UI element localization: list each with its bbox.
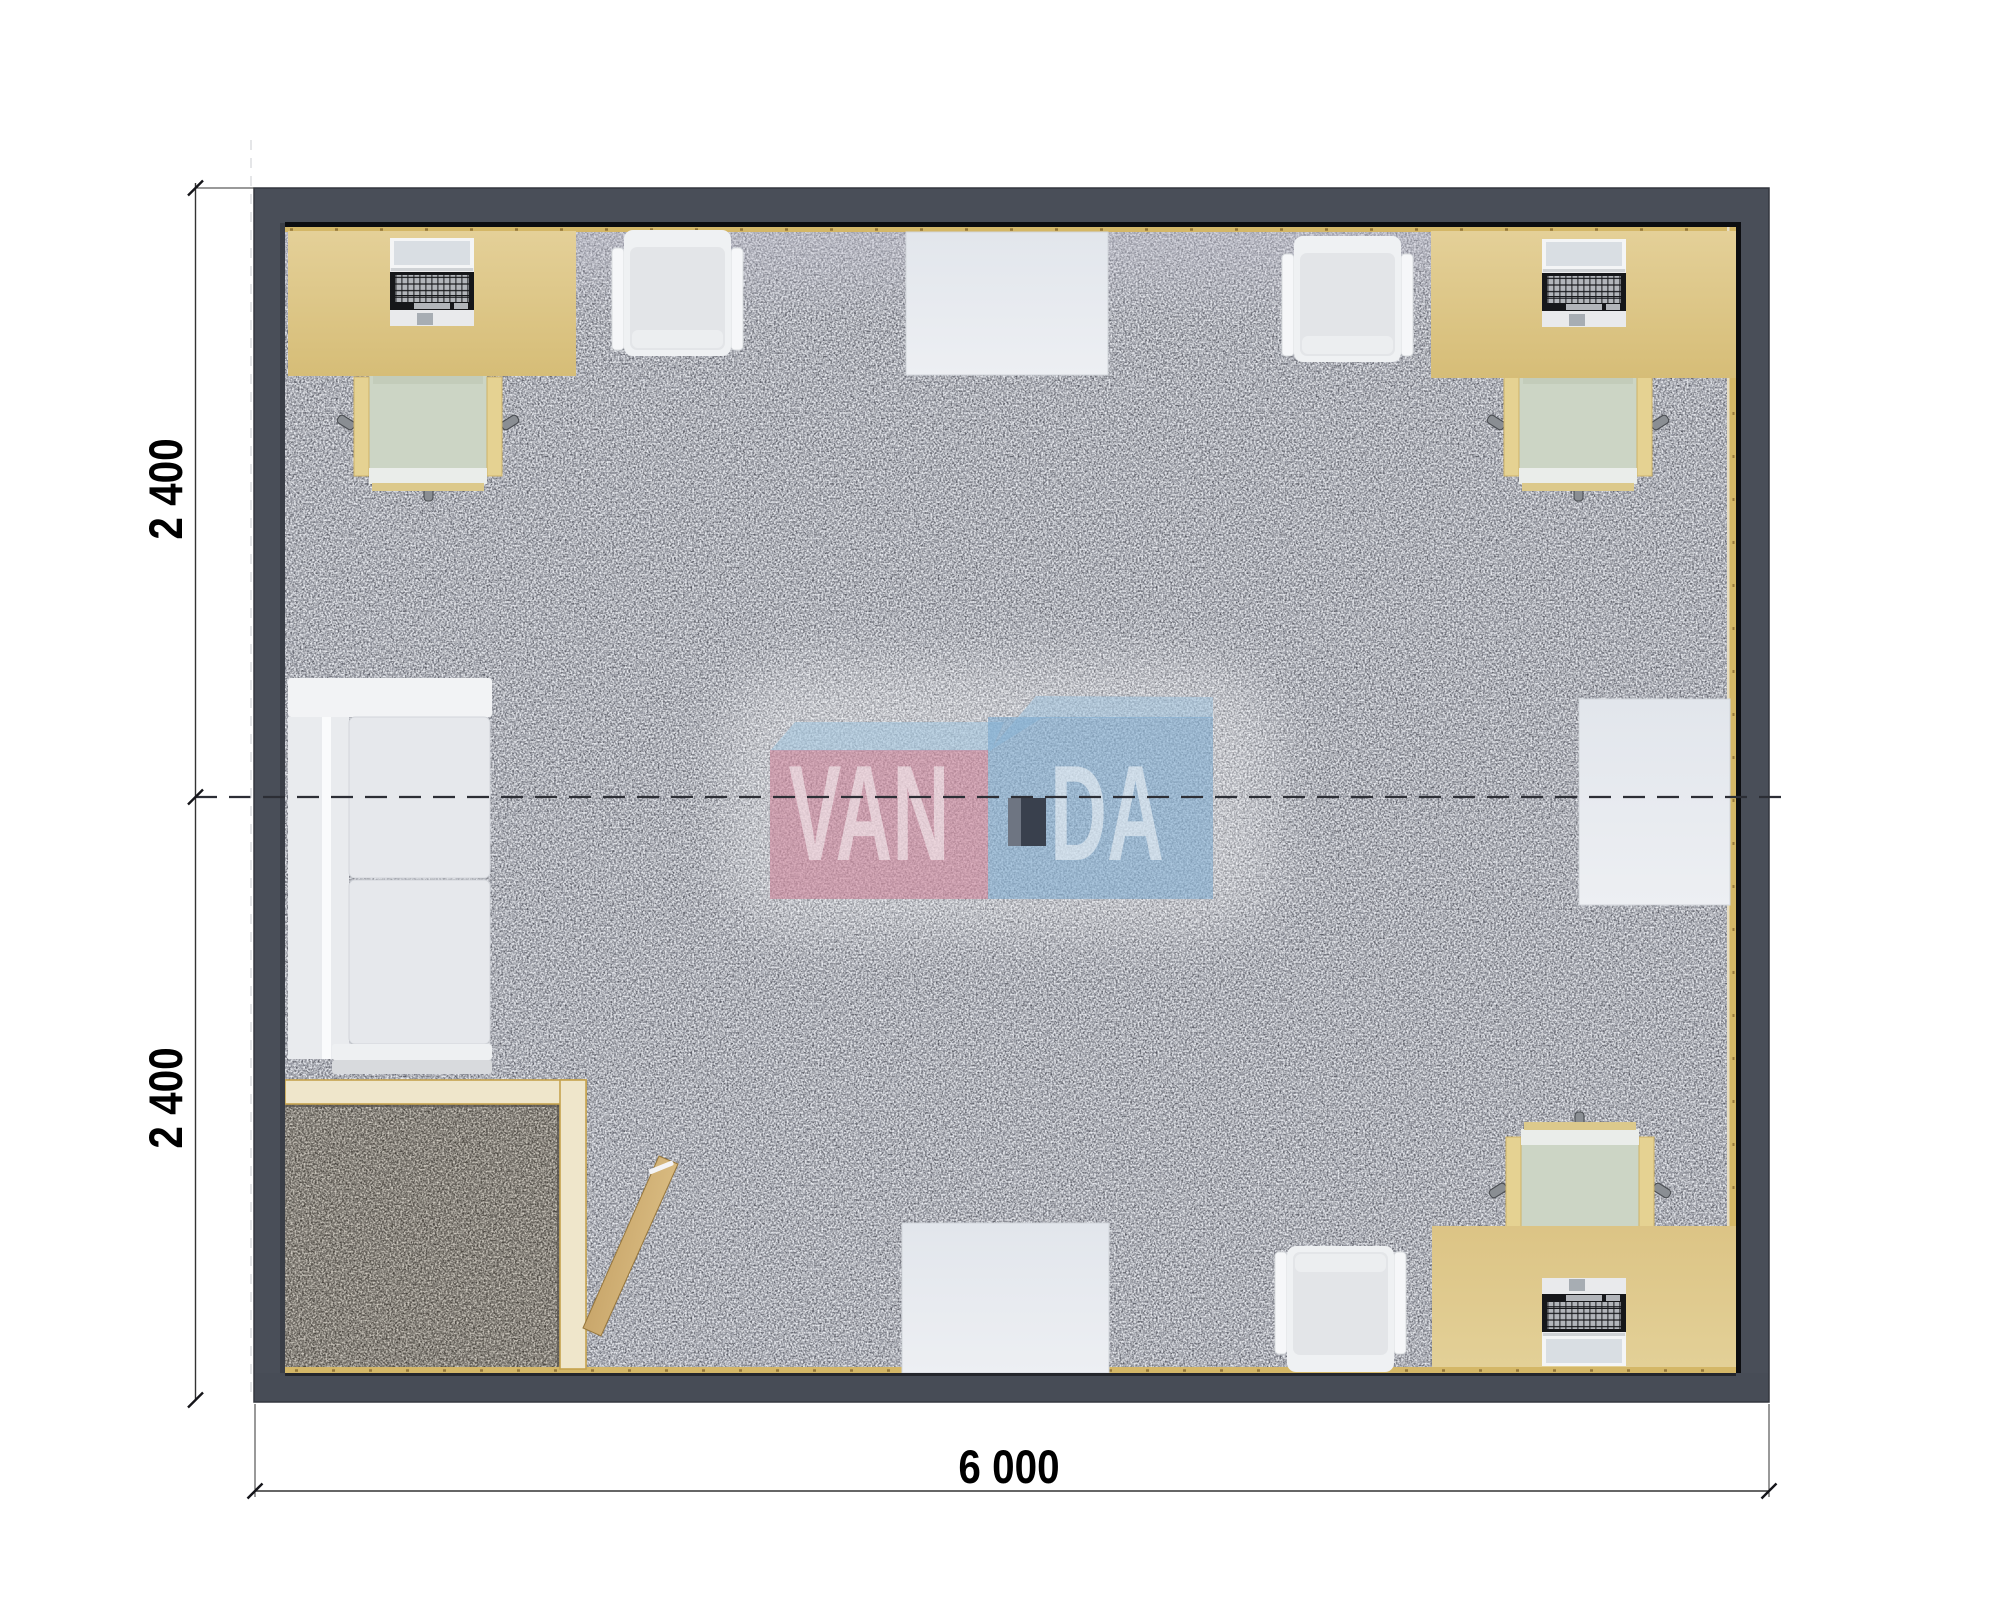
svg-text:6 000: 6 000 bbox=[958, 1441, 1059, 1494]
svg-text:DA: DA bbox=[1050, 736, 1164, 889]
svg-text:2 400: 2 400 bbox=[140, 438, 193, 539]
svg-text:2 400: 2 400 bbox=[140, 1047, 193, 1148]
svg-text:VAN: VAN bbox=[789, 736, 950, 889]
